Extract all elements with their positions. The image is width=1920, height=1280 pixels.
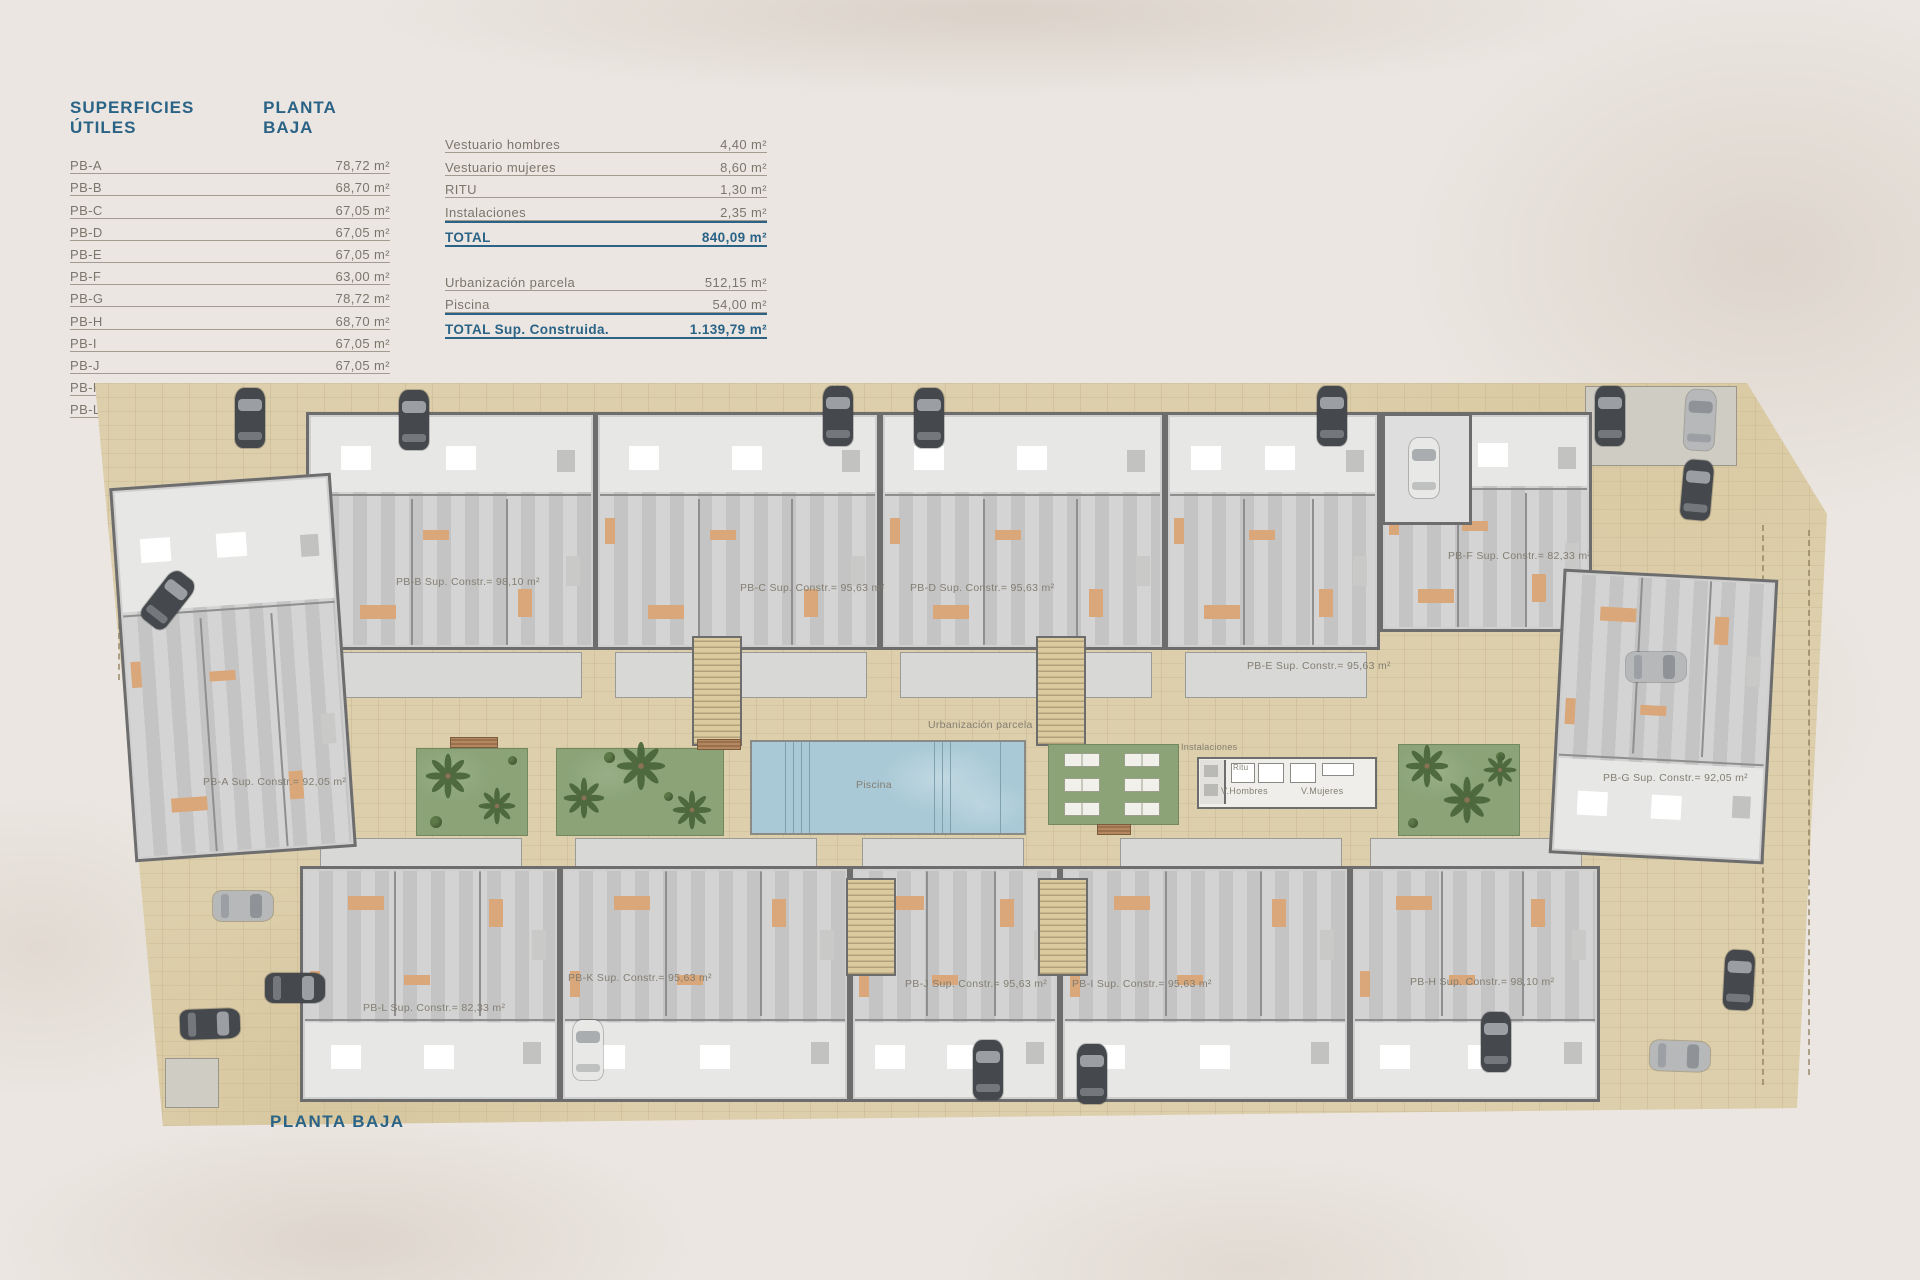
car <box>235 388 265 448</box>
unit-label-pb-i: PB-I Sup. Constr.= 95,63 m² <box>1072 978 1212 990</box>
palm-tree-icon <box>425 753 471 799</box>
unit-label-pb-g: PB-G Sup. Constr.= 92,05 m² <box>1603 772 1748 784</box>
unit-id: PB-F <box>70 269 101 284</box>
unit-id: PB-A <box>70 158 102 173</box>
summary-value: 1,30 m² <box>720 182 767 197</box>
surface-row: PB-C67,05 m² <box>70 196 390 218</box>
unit-area: 67,05 m² <box>335 358 390 373</box>
unit-area: 68,70 m² <box>335 314 390 329</box>
summary-label: Vestuario hombres <box>445 137 560 152</box>
bench <box>450 737 498 748</box>
floor-name: PLANTA BAJA <box>263 98 390 138</box>
summary-label: Vestuario mujeres <box>445 160 556 175</box>
boundary-dashed-line <box>1808 530 1810 1075</box>
unit-pb-k <box>560 866 850 1102</box>
unit-area: 78,72 m² <box>335 158 390 173</box>
car <box>213 891 273 921</box>
car <box>1683 389 1716 450</box>
unit-id: PB-C <box>70 203 103 218</box>
palm-tree-icon <box>616 741 666 791</box>
car <box>823 386 853 446</box>
summary-label: Piscina <box>445 297 490 312</box>
porch <box>1120 838 1342 868</box>
sunbed <box>1124 753 1160 767</box>
total-value: 840,09 m² <box>702 230 767 245</box>
surface-row: PB-D67,05 m² <box>70 219 390 241</box>
unit-label-pb-c: PB-C Sup. Constr.= 95,63 m² <box>740 582 884 594</box>
surface-row: PB-I67,05 m² <box>70 330 390 352</box>
surfaces-table-header: SUPERFICIES ÚTILES PLANTA BAJA <box>70 98 390 138</box>
unit-id: PB-B <box>70 180 102 195</box>
sunbed <box>1064 753 1100 767</box>
bush <box>508 756 517 765</box>
car <box>1722 949 1755 1010</box>
unit-pb-c <box>595 412 880 650</box>
unit-id: PB-G <box>70 291 103 306</box>
summary-value: 8,60 m² <box>720 160 767 175</box>
unit-pb-g <box>1549 569 1779 865</box>
unit-pb-b <box>306 412 596 650</box>
unit-label-pb-j: PB-J Sup. Constr.= 95,63 m² <box>905 978 1047 990</box>
surfaces-title: SUPERFICIES ÚTILES <box>70 98 263 138</box>
utility-slab <box>165 1058 219 1108</box>
vestuario-hombres-label: V.Hombres <box>1221 786 1268 796</box>
amenities-building <box>1197 757 1377 809</box>
total-label: TOTAL Sup. Construida. <box>445 322 609 337</box>
unit-pb-l <box>300 866 560 1102</box>
sunbed <box>1124 802 1160 816</box>
instalaciones-label: Instalaciones <box>1181 742 1237 752</box>
unit-label-pb-e: PB-E Sup. Constr.= 95,63 m² <box>1247 660 1391 672</box>
unit-label-pb-h: PB-H Sup. Constr.= 98,10 m² <box>1410 976 1554 988</box>
urbanizacion-label: Urbanización parcela <box>928 719 1033 731</box>
unit-label-pb-b: PB-B Sup. Constr.= 98,10 m² <box>396 576 540 588</box>
car <box>1649 1040 1710 1072</box>
unit-id: PB-E <box>70 247 102 262</box>
unit-label-pb-k: PB-K Sup. Constr.= 95,63 m² <box>568 972 712 984</box>
palm-tree-icon <box>563 777 605 819</box>
summary-row: Vestuario hombres4,40 m² <box>445 131 767 153</box>
car <box>1077 1044 1107 1104</box>
unit-area: 67,05 m² <box>335 247 390 262</box>
unit-label-pb-a: PB-A Sup. Constr.= 92,05 m² <box>203 776 346 788</box>
car <box>1317 386 1347 446</box>
car <box>265 973 325 1003</box>
unit-id: PB-H <box>70 314 103 329</box>
car <box>914 388 944 448</box>
porch <box>862 838 1024 868</box>
sunbed <box>1124 778 1160 792</box>
unit-label-pb-f: PB-F Sup. Constr.= 82,33 m² <box>1448 550 1591 562</box>
summary-label: RITU <box>445 182 477 197</box>
plan-sheet: SUPERFICIES ÚTILES PLANTA BAJA PB-A78,72… <box>0 0 1920 1280</box>
surface-row: PB-J67,05 m² <box>70 352 390 374</box>
car <box>1626 652 1686 682</box>
car <box>399 390 429 450</box>
unit-id: PB-D <box>70 225 103 240</box>
summary-label: Instalaciones <box>445 205 526 220</box>
surface-row: PB-E67,05 m² <box>70 241 390 263</box>
shelf <box>1322 763 1354 776</box>
sunbed <box>1064 778 1100 792</box>
palm-tree-icon <box>1483 753 1517 787</box>
summary-row: Piscina54,00 m² <box>445 291 767 313</box>
bench <box>697 739 741 750</box>
unit-area: 67,05 m² <box>335 336 390 351</box>
utility-room <box>1200 760 1226 804</box>
summary-value: 2,35 m² <box>720 205 767 220</box>
unit-area: 67,05 m² <box>335 225 390 240</box>
bush <box>430 816 442 828</box>
unit-id: PB-L <box>70 402 101 417</box>
sunbed <box>1064 802 1100 816</box>
unit-area: 68,70 m² <box>335 180 390 195</box>
surface-row: PB-G78,72 m² <box>70 285 390 307</box>
palm-tree-icon <box>478 787 516 825</box>
total-built-row: TOTAL Sup. Construida.1.139,79 m² <box>445 313 767 339</box>
bush <box>1408 818 1418 828</box>
surface-row: PB-B68,70 m² <box>70 174 390 196</box>
unit-pb-e <box>1165 412 1380 650</box>
surface-row: PB-H68,70 m² <box>70 307 390 329</box>
unit-area: 67,05 m² <box>335 203 390 218</box>
unit-label-pb-d: PB-D Sup. Constr.= 95,63 m² <box>910 582 1054 594</box>
surface-row: PB-F63,00 m² <box>70 263 390 285</box>
summary-row: RITU1,30 m² <box>445 176 767 198</box>
unit-label-pb-l: PB-L Sup. Constr.= 82,33 m² <box>363 1002 505 1014</box>
unit-pb-a <box>109 473 357 863</box>
summary-row: Instalaciones2,35 m² <box>445 198 767 220</box>
piscina-label: Piscina <box>856 779 892 791</box>
stairwell <box>692 636 742 746</box>
page-title: PLANTA BAJA <box>270 1112 405 1132</box>
unit-area: 78,72 m² <box>335 291 390 306</box>
stairwell <box>1036 636 1086 746</box>
ritu-label: Ritu <box>1233 763 1248 772</box>
car <box>573 1020 603 1080</box>
total-value: 1.139,79 m² <box>690 322 767 337</box>
car <box>973 1040 1003 1100</box>
wc-room <box>1258 763 1284 783</box>
vestuario-mujeres-label: V.Mujeres <box>1301 786 1343 796</box>
palm-tree-icon <box>672 790 712 830</box>
car <box>1481 1012 1511 1072</box>
car <box>1679 459 1714 521</box>
porch <box>575 838 817 868</box>
summary-value: 54,00 m² <box>712 297 767 312</box>
stairwell <box>846 878 896 976</box>
stairwell <box>1038 878 1088 976</box>
car <box>1595 386 1625 446</box>
surfaces-table: SUPERFICIES ÚTILES PLANTA BAJA PB-A78,72… <box>70 98 390 418</box>
summary-row: Vestuario mujeres8,60 m² <box>445 153 767 175</box>
surface-row: PB-A78,72 m² <box>70 152 390 174</box>
summary-value: 4,40 m² <box>720 137 767 152</box>
porch <box>1185 652 1367 698</box>
bench <box>1097 824 1131 835</box>
car <box>1409 438 1439 498</box>
unit-id: PB-J <box>70 358 100 373</box>
porch <box>900 652 1152 698</box>
car <box>179 1008 240 1040</box>
unit-area: 63,00 m² <box>335 269 390 284</box>
total-label: TOTAL <box>445 230 491 245</box>
unit-id: PB-I <box>70 336 97 351</box>
summary-value: 512,15 m² <box>705 275 767 290</box>
porch <box>330 652 582 698</box>
summary-label: Urbanización parcela <box>445 275 575 290</box>
wc-room <box>1290 763 1316 783</box>
bush <box>604 752 615 763</box>
summary-row: Urbanización parcela512,15 m² <box>445 269 767 291</box>
total-row: TOTAL840,09 m² <box>445 221 767 247</box>
summary-table: Vestuario hombres4,40 m² Vestuario mujer… <box>445 131 767 339</box>
